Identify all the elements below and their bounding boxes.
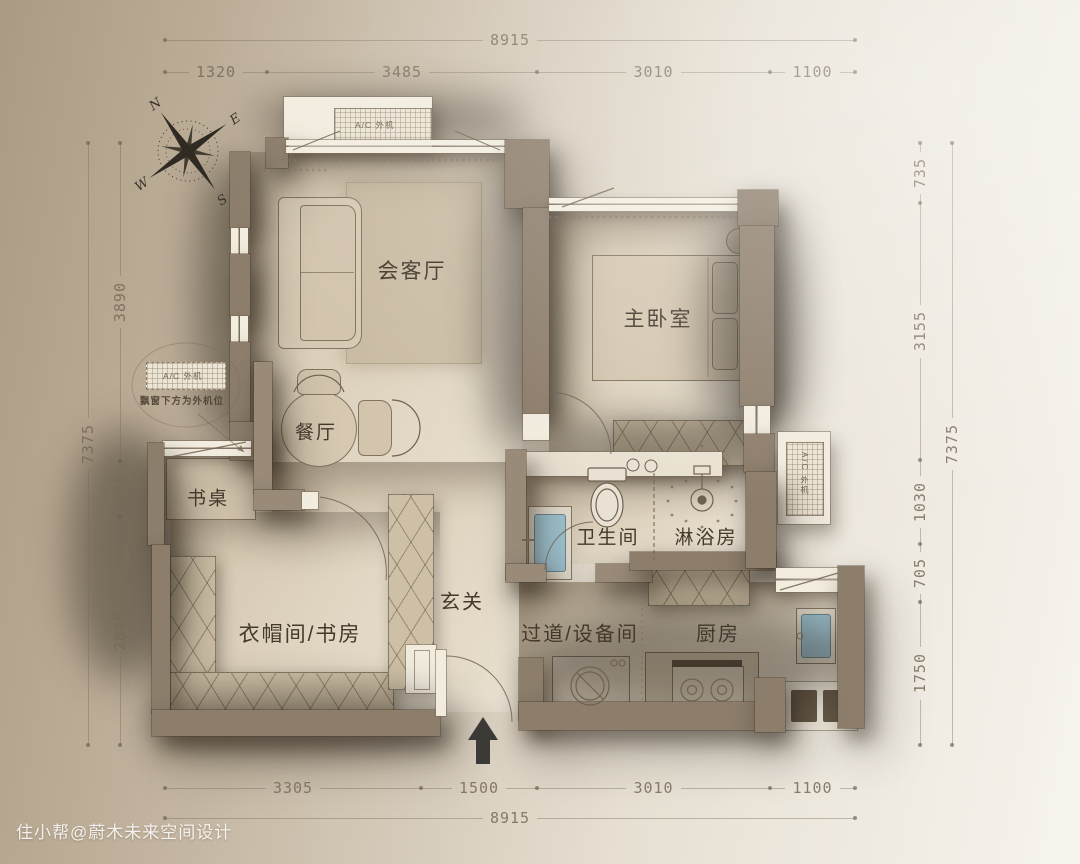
room-label-bath: 卫生间 (576, 523, 639, 550)
room-label-shower: 淋浴房 (674, 523, 737, 550)
dim-tick (853, 816, 857, 820)
wall (523, 208, 549, 414)
compass-w: W (132, 174, 153, 195)
dim-tick (163, 70, 167, 74)
dim-bottom-4: 1100 (770, 780, 855, 796)
entry-arrow-icon (468, 717, 498, 740)
dim-top-4: 1100 (770, 64, 855, 80)
pillow-1 (712, 262, 738, 314)
dim-tick (163, 38, 167, 42)
room-label-corridor: 过道/设备间 (521, 618, 639, 647)
dim-tick (918, 141, 922, 145)
dim-right-4: 705 (912, 544, 928, 602)
door-jamb-bedroom (523, 414, 549, 440)
dim-tick (853, 786, 857, 790)
dim-tick (535, 786, 539, 790)
watermark: 住小帮@蔚木未来空间设计 (16, 818, 232, 843)
window-desk-bay (163, 441, 251, 456)
dim-tick (918, 201, 922, 205)
compass-n: N (146, 95, 165, 115)
dim-right-1: 735 (912, 143, 928, 203)
wall (746, 472, 776, 568)
dim-tick (853, 38, 857, 42)
room-label-living: 会客厅 (378, 255, 447, 285)
dim-tick (86, 141, 90, 145)
dim-tick (918, 743, 922, 747)
dim-tick (950, 141, 954, 145)
room-label-entry: 玄关 (440, 586, 484, 615)
wall (744, 434, 774, 472)
dim-tick (118, 141, 122, 145)
ac-callout-box-label: A/C 外机 (163, 370, 203, 382)
dim-tick (118, 743, 122, 747)
dim-left-2: 685 (112, 461, 128, 517)
window-kitchen-top (776, 568, 840, 592)
kitchen-top-cabinet (648, 568, 750, 606)
dim-bottom-total: 8915 (165, 810, 855, 826)
dim-top-total: 8915 (165, 32, 855, 48)
window-living-top (286, 140, 506, 153)
dim-tick (853, 70, 857, 74)
entry-door-leaf (436, 650, 446, 716)
dim-tick (768, 786, 772, 790)
wall (230, 342, 250, 422)
dim-right-5: 1750 (912, 602, 928, 745)
dining-chair-east (358, 400, 392, 456)
dim-tick (918, 542, 922, 546)
dim-tick (918, 600, 922, 604)
pillow-2 (712, 318, 738, 370)
window-bedroom-right (744, 406, 770, 434)
cloakroom-wardrobe-bottom (170, 672, 394, 714)
dim-tick (118, 459, 122, 463)
dim-tick (265, 70, 269, 74)
dim-tick (950, 743, 954, 747)
wall (740, 226, 774, 406)
dim-tick (768, 70, 772, 74)
compass-e: E (227, 110, 245, 129)
kitchen-sink-basin (801, 614, 831, 658)
bath-vanity-counter (526, 452, 722, 476)
wall (519, 702, 763, 730)
dim-tick (163, 786, 167, 790)
dim-bottom-2: 1500 (421, 780, 537, 796)
dim-left-1: 3890 (112, 143, 128, 461)
dim-right-2: 3155 (912, 203, 928, 460)
wall (254, 362, 272, 494)
sofa-cushion-divider (300, 272, 354, 273)
ac-platform-top-label: A/C 外机 (355, 119, 395, 131)
wall (254, 490, 304, 510)
window-living-left-2 (231, 316, 248, 342)
compass-s: S (215, 192, 231, 209)
room-label-dining: 餐厅 (295, 418, 337, 445)
room-label-bedroom: 主卧室 (624, 303, 693, 333)
dim-tick (535, 70, 539, 74)
shoe-cabinet-inner (414, 650, 430, 690)
dim-right-3: 1030 (912, 460, 928, 544)
dim-right-total: 7375 (944, 143, 960, 745)
dim-top-2: 3485 (267, 64, 537, 80)
dim-tick (918, 458, 922, 462)
room-label-cloak: 衣帽间/书房 (239, 618, 362, 648)
wall (230, 254, 250, 316)
room-label-kitchen: 厨房 (696, 618, 740, 647)
wall (152, 545, 170, 713)
sofa-seat (300, 205, 356, 341)
window-living-left-1 (231, 228, 248, 254)
room-label-desk: 书桌 (187, 484, 229, 511)
entry-arrow-stem (476, 740, 490, 764)
dim-tick (419, 786, 423, 790)
door-jamb-cloakroom (302, 492, 318, 509)
dim-tick (118, 515, 122, 519)
wall (230, 152, 250, 228)
wall (152, 710, 440, 736)
ac-callout-note: 飘窗下方为外机位 (140, 393, 224, 407)
floor-plan: A/C 外机 A/C 外机 A/C 外机 飘窗下方为外机位 (0, 0, 1080, 864)
wall (506, 450, 526, 580)
wall (738, 190, 778, 226)
dim-bottom-1: 3305 (165, 780, 421, 796)
wall (266, 138, 288, 168)
wall (505, 140, 549, 208)
ac-side-label: A/C 外机 (799, 452, 810, 496)
stove-backsplash (672, 660, 742, 667)
window-bedroom-top (549, 198, 739, 211)
wall (506, 564, 546, 582)
dim-top-1: 1320 (165, 64, 267, 80)
wall (838, 566, 864, 728)
dining-chair-north (297, 369, 341, 395)
dim-top-3: 3010 (537, 64, 770, 80)
dim-tick (86, 743, 90, 747)
dim-left-3: 2800 (112, 517, 128, 745)
appliance-1 (791, 690, 817, 722)
dim-bottom-3: 3010 (537, 780, 770, 796)
dim-left-total: 7375 (80, 143, 96, 745)
wall (755, 678, 785, 732)
wall (148, 443, 164, 545)
